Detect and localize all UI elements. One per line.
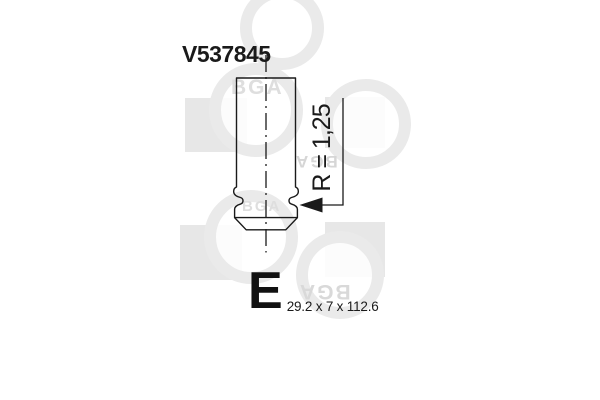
dimensions-label: 29.2 x 7 x 112.6 <box>287 299 379 314</box>
part-number: V537845 <box>182 41 271 68</box>
valve-technical-drawing <box>0 0 600 400</box>
valve-type-letter: E <box>248 270 283 314</box>
radius-annotation: R = 1,25 <box>307 88 337 208</box>
size-specification: E 29.2 x 7 x 112.6 <box>248 270 379 314</box>
valve-catalog-image: BGA BGA BGA BGA V537845 R = 1,25 E 29.2 … <box>0 0 600 400</box>
